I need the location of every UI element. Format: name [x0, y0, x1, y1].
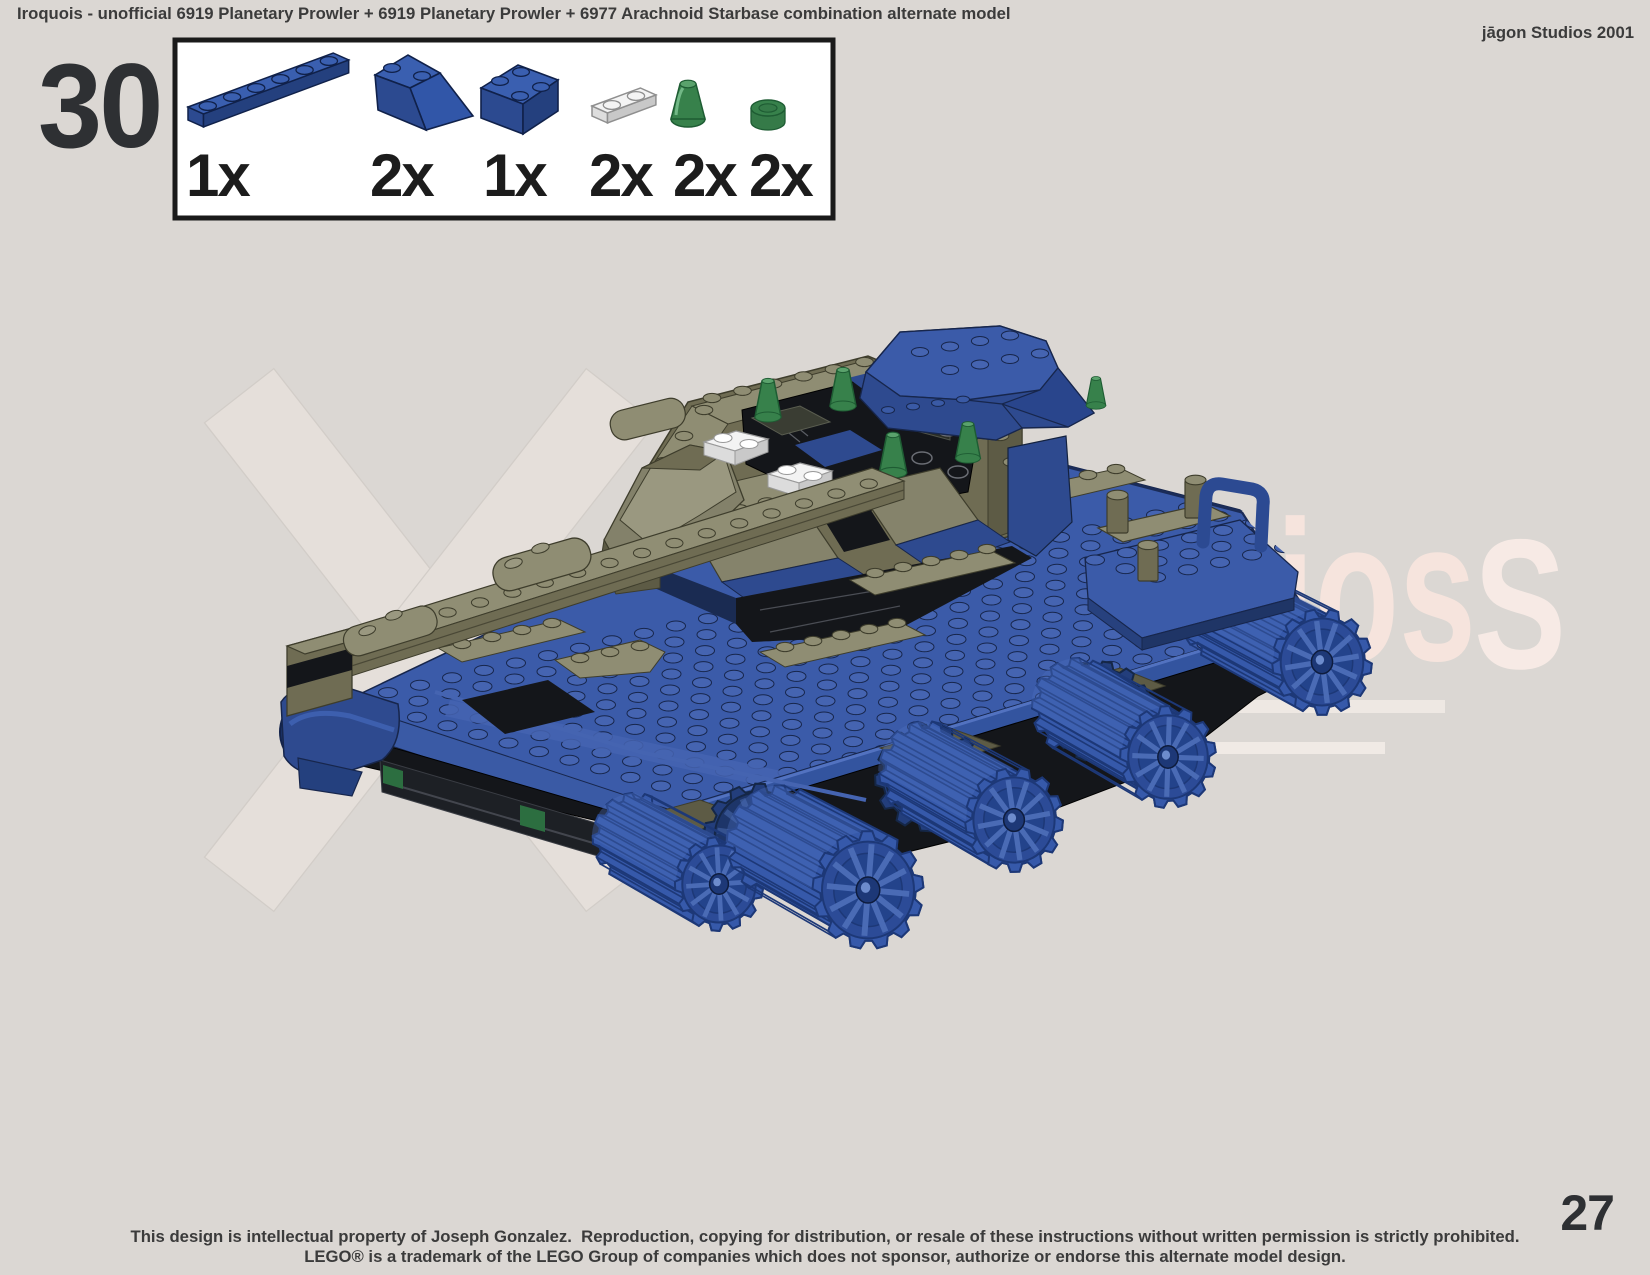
svg-text:S: S	[1474, 502, 1566, 708]
